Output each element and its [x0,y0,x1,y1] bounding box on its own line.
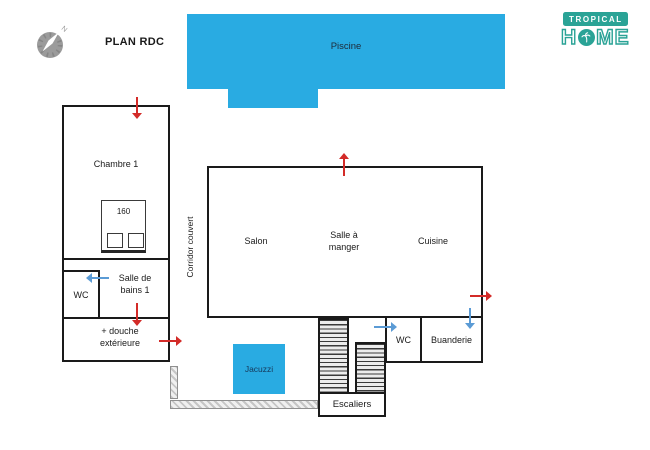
walkway-horizontal [170,400,318,409]
bed: 160 [101,200,146,253]
chambre-entrance-arrow [132,97,142,119]
stairs-box: Escaliers [318,392,386,417]
bed-size-label: 160 [102,207,145,216]
wall-bath-shower [64,317,168,319]
wall-chambre-bath [64,258,168,260]
stairs-label: Escaliers [333,399,372,410]
corridor-label: Corridor couvert [185,203,195,291]
pool-notch [228,88,318,108]
room-label-outdoor-shower: + douche extérieure [88,326,152,349]
bathroom-to-shower-arrow [132,303,142,326]
compass-north-label: N [60,25,68,34]
annex-wc-entrance-arrow [374,322,397,332]
bathroom-to-wc-arrow [86,273,109,283]
pool-label: Piscine [187,41,505,52]
room-label-wc2: WC [396,335,411,345]
jacuzzi-label: Jacuzzi [245,364,273,374]
room-label-kitchen: Cuisine [403,236,463,248]
main-top-entrance-arrow [339,153,349,176]
shower-exit-arrow [159,336,182,346]
brand-home-word: H ME [561,27,630,48]
brand-home-h: H [561,27,577,48]
room-label-wc1: WC [74,290,89,300]
compass-icon: N [34,18,80,64]
laundry-entrance-arrow [465,308,475,329]
room-label-bathroom: Salle de bains 1 [107,273,163,296]
stairs-flight-1 [318,318,349,394]
room-label-salon: Salon [226,236,286,248]
brand-badge: TROPICAL [563,12,628,26]
pool-area: Piscine [187,14,505,89]
main-building: Salon Salle à manger Cuisine [207,166,483,318]
palm-tree-icon [578,29,595,46]
jacuzzi: Jacuzzi [233,344,285,394]
page-title: PLAN RDC [105,36,164,48]
walkway-vertical [170,366,178,399]
room-label-laundry: Buanderie [431,335,472,345]
left-wing-building: Chambre 1 160 WC Salle de bains 1 + douc… [62,105,170,362]
room-label-dining: Salle à manger [314,230,374,253]
brand-logo: TROPICAL H ME [561,12,630,48]
brand-home-me: ME [596,27,630,48]
kitchen-exit-arrow [470,291,492,301]
pillow [128,233,144,248]
room-label-chambre1: Chambre 1 [64,159,168,171]
floor-plan: N PLAN RDC TROPICAL H ME Piscine [0,0,650,450]
pillow [107,233,123,248]
stairs-flight-2 [355,342,386,394]
